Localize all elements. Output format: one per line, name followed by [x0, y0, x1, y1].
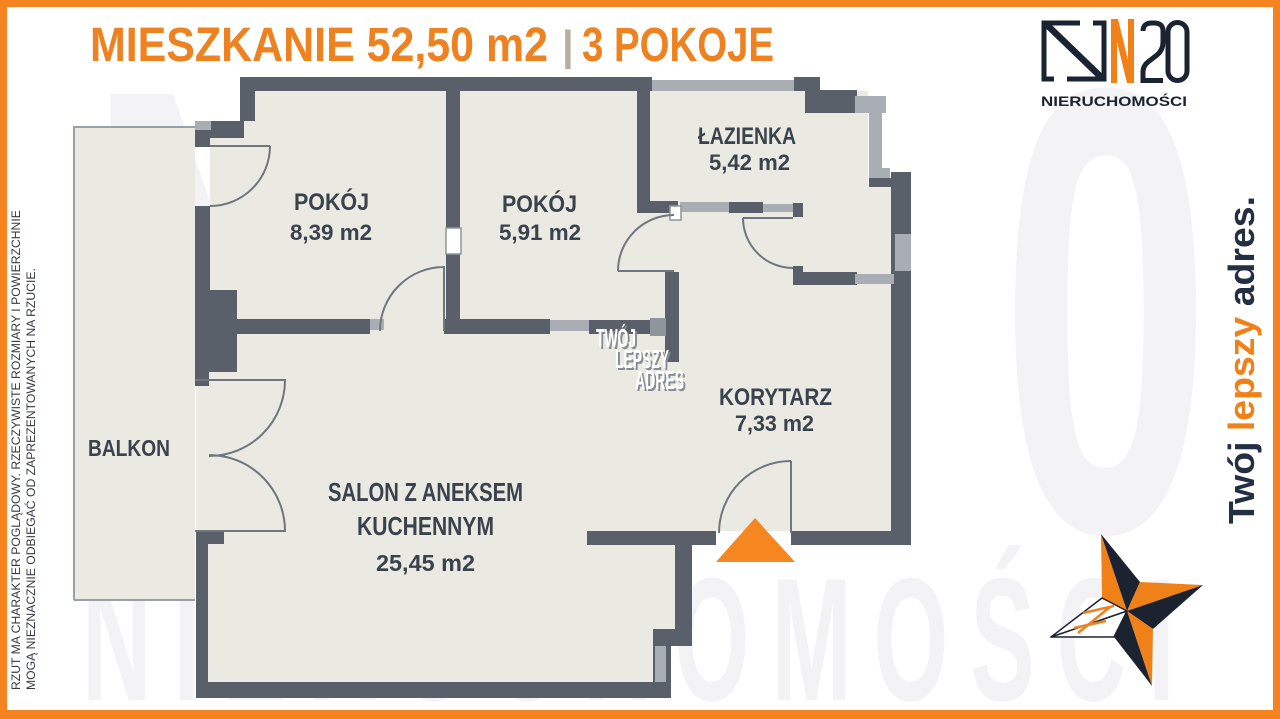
svg-text:KORYTARZ: KORYTARZ	[719, 384, 832, 411]
svg-text:KUCHENNYM: KUCHENNYM	[357, 511, 494, 541]
svg-text:RZUT MA CHARAKTER POGLĄDOWY. R: RZUT MA CHARAKTER POGLĄDOWY. RZECZYWISTE…	[9, 210, 23, 690]
svg-text:5,91 m2: 5,91 m2	[499, 220, 581, 245]
svg-text:SALON Z ANEKSEM: SALON Z ANEKSEM	[328, 477, 523, 507]
svg-text:POKÓJ: POKÓJ	[294, 188, 369, 216]
svg-text:NIERUCHOMOŚCI: NIERUCHOMOŚCI	[1041, 92, 1187, 109]
svg-text:MOGĄ NIEZNACZNIE ODBIEGAĆ OD Z: MOGĄ NIEZNACZNIE ODBIEGAĆ OD ZAPREZENTOW…	[23, 268, 38, 690]
svg-text:|: |	[562, 22, 574, 70]
svg-text:ŁAZIENKA: ŁAZIENKA	[698, 123, 796, 150]
svg-text:ADRES: ADRES	[635, 365, 684, 395]
svg-text:MIESZKANIE 52,50 m2: MIESZKANIE 52,50 m2	[90, 19, 548, 72]
svg-text:3 POKOJE: 3 POKOJE	[582, 19, 774, 72]
svg-text:25,45 m2: 25,45 m2	[376, 550, 475, 576]
svg-text:7,33 m2: 7,33 m2	[735, 411, 814, 436]
svg-text:POKÓJ: POKÓJ	[502, 190, 577, 218]
svg-text:Twój lepszy adres.: Twój lepszy adres.	[1221, 196, 1262, 524]
svg-text:BALKON: BALKON	[88, 435, 170, 461]
svg-text:5,42 m2: 5,42 m2	[709, 150, 790, 175]
svg-text:8,39 m2: 8,39 m2	[290, 220, 372, 245]
